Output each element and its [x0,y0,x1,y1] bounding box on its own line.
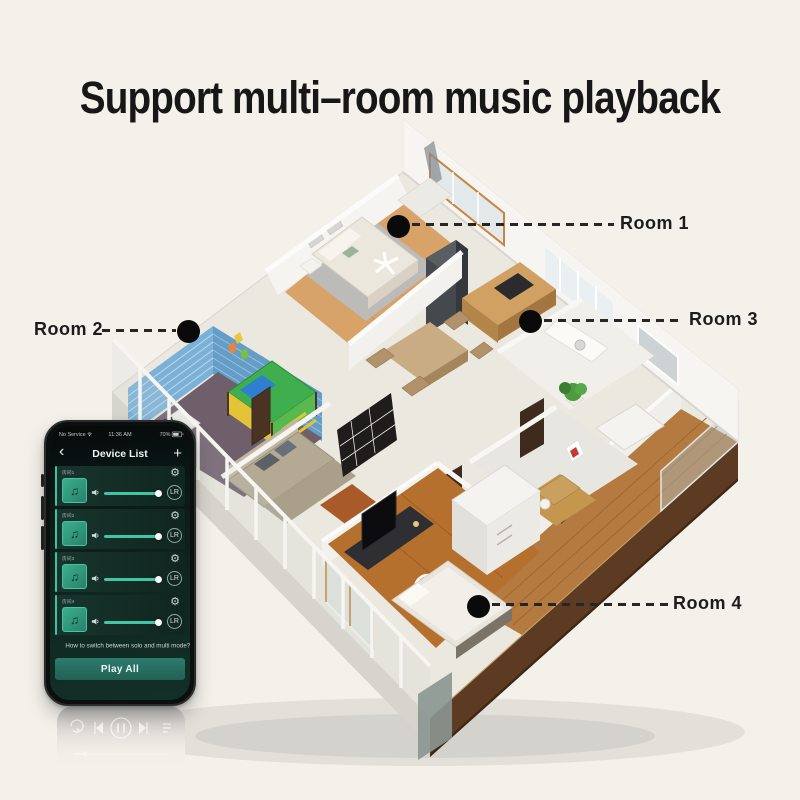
speaker-icon[interactable] [91,488,100,497]
music-note-icon: ♫ [70,614,79,626]
channel-toggle[interactable]: LR [167,614,182,629]
device-name: 房间4 [62,598,74,605]
speaker-icon[interactable] [91,617,100,626]
screen-title: Device List [50,448,190,460]
phone-volume-up-button [41,496,44,520]
card-accent-bar [55,552,57,592]
volume-slider-thumb[interactable] [155,619,162,626]
device-name: 房间2 [62,512,74,519]
room-4-label: Room 4 [673,593,742,614]
volume-slider-thumb[interactable] [155,533,162,540]
album-art-tile: ♫ [62,607,87,632]
previous-icon [95,722,103,734]
volume-slider[interactable] [104,621,161,624]
room-3-label: Room 3 [689,309,758,330]
card-accent-bar [55,595,57,635]
app-header: ‹ Device List + [50,442,190,464]
album-art-tile: ♫ [62,521,87,546]
phone-screen: No Service 11:36 AM 70% ‹ Device List + [50,426,190,700]
music-note-icon: ♫ [70,528,79,540]
album-art-tile: ♫ [62,478,87,503]
room-3-marker [519,310,542,333]
volume-slider-thumb[interactable] [155,576,162,583]
volume-slider-thumb[interactable] [155,490,162,497]
speaker-icon[interactable] [91,531,100,540]
volume-slider[interactable] [104,535,161,538]
device-row[interactable]: 房间4 ⚙ ♫ LR [55,595,185,635]
playlist-icon [163,724,171,732]
card-accent-bar [55,509,57,549]
room-1-label: Room 1 [620,213,689,234]
status-bar: No Service 11:36 AM 70% [50,431,190,441]
room-1-callout-line [412,223,614,226]
card-accent-bar [55,466,57,506]
channel-toggle[interactable]: LR [167,528,182,543]
play-all-button[interactable]: Play All [55,658,185,680]
room-4-callout-line [492,603,670,606]
volume-slider[interactable] [104,492,161,495]
next-icon [139,722,147,734]
player-controls-reflection [65,710,177,768]
room-2-label: Room 2 [34,319,103,340]
room-2-marker [177,320,200,343]
album-art-tile: ♫ [62,564,87,589]
gear-icon[interactable]: ⚙ [170,467,180,479]
device-name: 房间1 [62,469,74,476]
device-row[interactable]: 房间1 ⚙ ♫ LR [55,466,185,506]
phone-side-button [41,474,44,487]
volume-slider[interactable] [104,578,161,581]
room-4-marker [467,595,490,618]
battery-icon [172,431,182,436]
progress-thumb [83,752,88,757]
phone-mockup: No Service 11:36 AM 70% ‹ Device List + [44,420,196,706]
room-2-callout-line [102,329,176,332]
device-name: 房间3 [62,555,74,562]
device-list: 房间1 ⚙ ♫ LR 房间2 ⚙ ♫ LR 房间3 ⚙ [55,466,185,638]
device-row[interactable]: 房间3 ⚙ ♫ LR [55,552,185,592]
add-device-button[interactable]: + [173,445,182,462]
battery-percent: 70% [160,431,171,437]
room-3-callout-line [544,319,684,322]
channel-toggle[interactable]: LR [167,571,182,586]
repeat-icon [71,720,83,732]
music-note-icon: ♫ [70,571,79,583]
phone-volume-down-button [41,526,44,550]
device-row[interactable]: 房间2 ⚙ ♫ LR [55,509,185,549]
phone-reflection [57,706,185,772]
gear-icon[interactable]: ⚙ [170,596,180,608]
room-1-marker [387,215,410,238]
mode-hint-link[interactable]: How to switch between solo and multi mod… [65,642,174,649]
clock: 11:36 AM [71,431,169,437]
gear-icon[interactable]: ⚙ [170,553,180,565]
marketing-image: Support multi–room music playback [0,0,800,800]
gear-icon[interactable]: ⚙ [170,510,180,522]
pause-icon [111,718,131,738]
channel-toggle[interactable]: LR [167,485,182,500]
music-note-icon: ♫ [70,485,79,497]
speaker-icon[interactable] [91,574,100,583]
